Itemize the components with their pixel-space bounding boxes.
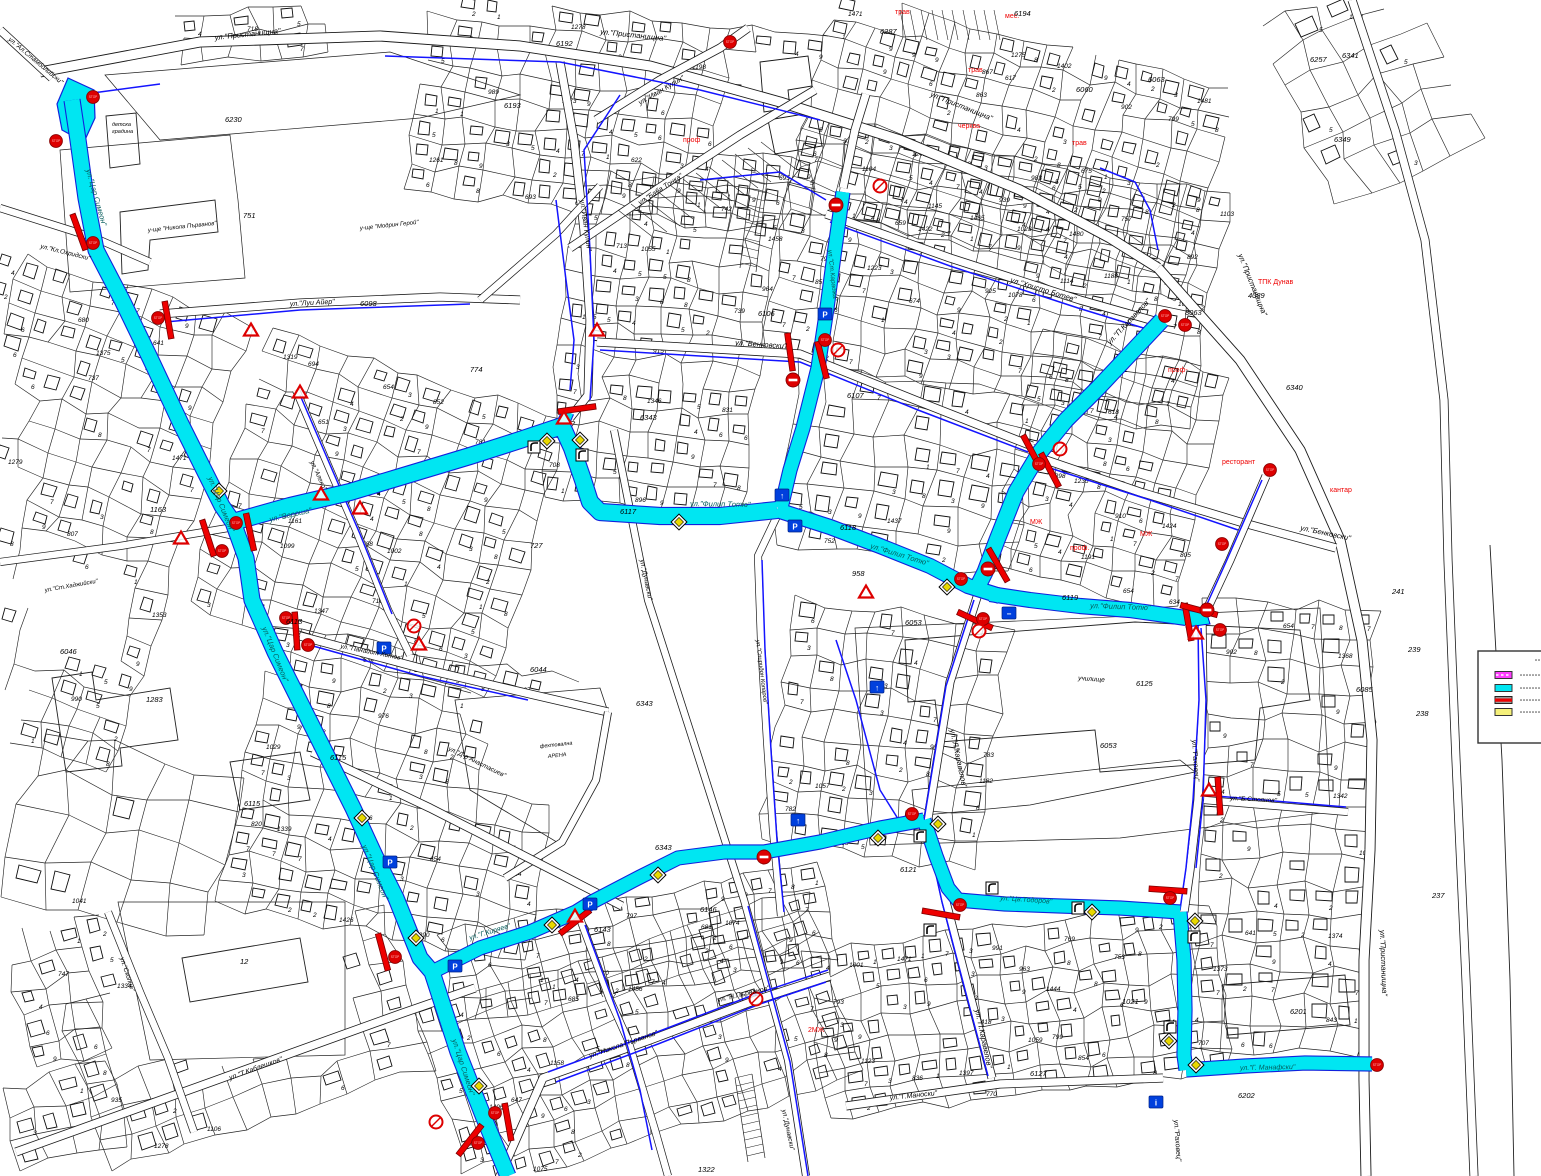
svg-text:STOP: STOP bbox=[1216, 628, 1225, 632]
svg-text:3: 3 bbox=[576, 364, 580, 371]
svg-text:5: 5 bbox=[638, 271, 642, 278]
svg-text:1402: 1402 bbox=[1057, 63, 1072, 70]
svg-text:976: 976 bbox=[378, 713, 389, 720]
svg-text:6: 6 bbox=[976, 805, 980, 812]
svg-text:5: 5 bbox=[697, 404, 701, 411]
svg-text:9: 9 bbox=[129, 686, 133, 693]
svg-text:6: 6 bbox=[1102, 1052, 1106, 1059]
svg-text:863: 863 bbox=[976, 92, 987, 99]
svg-text:836: 836 bbox=[912, 1075, 923, 1082]
svg-text:проф.: проф. bbox=[1070, 545, 1089, 552]
svg-text:2: 2 bbox=[1158, 924, 1163, 931]
svg-text:5: 5 bbox=[634, 132, 638, 139]
svg-text:1103: 1103 bbox=[1220, 211, 1234, 218]
svg-text:4: 4 bbox=[1274, 903, 1278, 910]
svg-text:4: 4 bbox=[350, 401, 354, 408]
svg-text:STOP: STOP bbox=[89, 241, 98, 245]
svg-text:7: 7 bbox=[190, 487, 194, 494]
svg-text:5: 5 bbox=[1191, 121, 1195, 128]
svg-text:1: 1 bbox=[389, 795, 393, 802]
svg-text:7: 7 bbox=[800, 699, 804, 706]
svg-text:трав: трав bbox=[1072, 140, 1087, 147]
svg-text:7: 7 bbox=[792, 275, 796, 282]
svg-text:3: 3 bbox=[1108, 437, 1112, 444]
svg-text:8: 8 bbox=[1254, 650, 1258, 657]
svg-text:6: 6 bbox=[924, 977, 928, 984]
svg-text:9: 9 bbox=[1197, 197, 1201, 204]
svg-text:4: 4 bbox=[914, 660, 918, 667]
svg-text:3: 3 bbox=[587, 1099, 591, 1106]
svg-text:7: 7 bbox=[849, 359, 853, 366]
svg-text:1480: 1480 bbox=[1069, 231, 1084, 238]
svg-text:6: 6 bbox=[1241, 1042, 1245, 1049]
svg-text:9: 9 bbox=[1247, 846, 1251, 853]
svg-text:6: 6 bbox=[1269, 1043, 1273, 1050]
svg-text:7: 7 bbox=[782, 322, 786, 329]
svg-text:807: 807 bbox=[67, 531, 78, 538]
svg-text:2: 2 bbox=[577, 1152, 582, 1159]
svg-text:3: 3 bbox=[888, 1078, 892, 1085]
svg-text:680: 680 bbox=[78, 317, 89, 324]
svg-text:3: 3 bbox=[733, 967, 737, 974]
svg-text:9: 9 bbox=[484, 497, 488, 504]
svg-text:9: 9 bbox=[935, 57, 939, 64]
svg-text:6: 6 bbox=[1126, 466, 1130, 473]
svg-text:9: 9 bbox=[930, 744, 934, 751]
svg-text:9: 9 bbox=[335, 451, 339, 458]
svg-text:1322: 1322 bbox=[698, 1165, 716, 1174]
svg-text:5: 5 bbox=[613, 469, 617, 476]
svg-text:1: 1 bbox=[31, 738, 35, 745]
svg-text:5: 5 bbox=[104, 679, 108, 686]
svg-text:8: 8 bbox=[1197, 329, 1201, 336]
svg-text:9: 9 bbox=[1334, 765, 1338, 772]
svg-text:5: 5 bbox=[1305, 792, 1309, 799]
svg-text:8: 8 bbox=[684, 302, 688, 309]
svg-text:239: 239 bbox=[1407, 645, 1421, 654]
svg-text:2: 2 bbox=[864, 139, 869, 146]
svg-text:1: 1 bbox=[1007, 1064, 1011, 1071]
svg-text:4: 4 bbox=[913, 152, 917, 159]
svg-text:3: 3 bbox=[286, 642, 290, 649]
svg-text:3: 3 bbox=[890, 269, 894, 276]
svg-text:7: 7 bbox=[877, 395, 881, 402]
svg-text:8: 8 bbox=[10, 541, 14, 548]
svg-text:6: 6 bbox=[729, 944, 733, 951]
svg-text:1223: 1223 bbox=[867, 265, 882, 272]
svg-text:P: P bbox=[792, 523, 798, 532]
svg-text:5: 5 bbox=[635, 1009, 639, 1016]
svg-text:5: 5 bbox=[876, 983, 880, 990]
svg-text:4: 4 bbox=[903, 740, 907, 747]
svg-text:3: 3 bbox=[343, 426, 347, 433]
svg-text:2: 2 bbox=[614, 988, 619, 995]
svg-text:9: 9 bbox=[848, 237, 852, 244]
svg-text:8063: 8063 bbox=[1185, 308, 1203, 317]
svg-text:7: 7 bbox=[988, 244, 992, 251]
svg-text:1: 1 bbox=[552, 984, 556, 991]
svg-text:820: 820 bbox=[251, 821, 262, 828]
svg-text:5: 5 bbox=[861, 844, 865, 851]
svg-text:7: 7 bbox=[862, 288, 866, 295]
svg-text:727: 727 bbox=[530, 541, 543, 550]
svg-text:896: 896 bbox=[635, 497, 646, 504]
svg-text:6115: 6115 bbox=[244, 799, 261, 808]
svg-text:1075: 1075 bbox=[533, 1166, 548, 1173]
svg-text:641: 641 bbox=[1245, 930, 1256, 937]
svg-text:8: 8 bbox=[626, 1062, 630, 1069]
svg-text:5: 5 bbox=[1037, 396, 1041, 403]
svg-text:5: 5 bbox=[402, 499, 406, 506]
svg-text:8: 8 bbox=[427, 506, 431, 513]
svg-text:1: 1 bbox=[460, 111, 464, 118]
svg-text:9: 9 bbox=[725, 1057, 729, 1064]
svg-text:8: 8 bbox=[846, 760, 850, 767]
svg-text:7: 7 bbox=[50, 499, 54, 506]
svg-text:6113: 6113 bbox=[286, 617, 303, 626]
svg-text:737: 737 bbox=[88, 375, 99, 382]
svg-text:6106: 6106 bbox=[758, 309, 776, 318]
svg-text:739: 739 bbox=[734, 308, 745, 315]
svg-text:774: 774 bbox=[470, 365, 483, 374]
svg-text:8: 8 bbox=[1103, 461, 1107, 468]
svg-text:2: 2 bbox=[1218, 873, 1223, 880]
svg-text:3: 3 bbox=[400, 876, 404, 883]
svg-text:ул."Г. Манафски": ул."Г. Манафски" bbox=[1239, 1064, 1296, 1072]
svg-text:797: 797 bbox=[626, 913, 637, 920]
svg-text:6: 6 bbox=[661, 110, 665, 117]
svg-text:3: 3 bbox=[947, 354, 951, 361]
svg-text:6: 6 bbox=[46, 1030, 50, 1037]
svg-text:2: 2 bbox=[409, 825, 414, 832]
svg-text:3: 3 bbox=[884, 683, 888, 690]
svg-text:6257: 6257 bbox=[1310, 55, 1328, 64]
svg-text:8: 8 bbox=[824, 1052, 828, 1059]
svg-text:4: 4 bbox=[1046, 226, 1050, 233]
svg-text:3: 3 bbox=[892, 489, 896, 496]
svg-text:8: 8 bbox=[1339, 625, 1343, 632]
svg-text:7: 7 bbox=[891, 630, 895, 637]
svg-text:9: 9 bbox=[136, 661, 140, 668]
svg-text:P: P bbox=[822, 311, 828, 320]
svg-text:4: 4 bbox=[979, 189, 983, 196]
svg-text:989: 989 bbox=[488, 89, 499, 96]
svg-text:7: 7 bbox=[246, 846, 250, 853]
svg-text:2: 2 bbox=[898, 767, 903, 774]
svg-text:7: 7 bbox=[933, 717, 937, 724]
svg-text:1342: 1342 bbox=[1333, 793, 1348, 800]
svg-text:3: 3 bbox=[1414, 160, 1418, 167]
svg-text:8: 8 bbox=[571, 1129, 575, 1136]
svg-text:6: 6 bbox=[341, 1085, 345, 1092]
svg-text:7: 7 bbox=[1090, 408, 1094, 415]
svg-text:1: 1 bbox=[1025, 418, 1029, 425]
svg-text:2: 2 bbox=[113, 736, 118, 743]
svg-text:1471: 1471 bbox=[848, 11, 863, 18]
svg-text:7: 7 bbox=[298, 856, 302, 863]
svg-text:2: 2 bbox=[382, 688, 387, 695]
svg-text:↑: ↑ bbox=[875, 684, 879, 693]
svg-text:2: 2 bbox=[805, 326, 810, 333]
svg-text:681: 681 bbox=[701, 924, 712, 931]
svg-text:5: 5 bbox=[121, 357, 125, 364]
svg-text:7: 7 bbox=[1173, 324, 1177, 331]
svg-text:6194: 6194 bbox=[1014, 9, 1031, 18]
svg-text:6: 6 bbox=[94, 1044, 98, 1051]
svg-text:2: 2 bbox=[172, 1108, 177, 1115]
svg-text:752: 752 bbox=[824, 538, 835, 545]
svg-text:1426: 1426 bbox=[339, 917, 354, 924]
svg-text:7: 7 bbox=[417, 449, 421, 456]
svg-text:8: 8 bbox=[1034, 57, 1038, 64]
svg-text:751: 751 bbox=[243, 211, 256, 220]
svg-text:1444: 1444 bbox=[1046, 986, 1061, 993]
svg-text:2: 2 bbox=[312, 912, 317, 919]
svg-text:8: 8 bbox=[504, 611, 508, 618]
svg-text:1104: 1104 bbox=[862, 166, 876, 173]
svg-text:6: 6 bbox=[975, 212, 979, 219]
svg-text:2: 2 bbox=[998, 339, 1003, 346]
svg-text:3: 3 bbox=[100, 514, 104, 521]
svg-text:7: 7 bbox=[1175, 576, 1179, 583]
svg-text:9: 9 bbox=[622, 193, 626, 200]
svg-text:237: 237 bbox=[1431, 891, 1445, 900]
svg-text:3: 3 bbox=[635, 296, 639, 303]
svg-text:2: 2 bbox=[940, 232, 945, 239]
svg-text:5: 5 bbox=[355, 566, 359, 573]
svg-text:6046: 6046 bbox=[60, 647, 78, 656]
svg-text:1275: 1275 bbox=[1011, 52, 1026, 59]
svg-text:7: 7 bbox=[768, 888, 772, 895]
svg-text:9: 9 bbox=[919, 373, 923, 380]
svg-text:7: 7 bbox=[387, 1042, 391, 1049]
svg-text:2: 2 bbox=[946, 110, 951, 117]
svg-text:ресторант: ресторант bbox=[1222, 459, 1256, 466]
svg-text:4: 4 bbox=[965, 409, 969, 416]
svg-text:9: 9 bbox=[858, 1034, 862, 1041]
svg-text:9: 9 bbox=[42, 524, 46, 531]
svg-text:6053: 6053 bbox=[1100, 741, 1118, 750]
svg-text:3: 3 bbox=[408, 392, 412, 399]
svg-text:1339: 1339 bbox=[277, 826, 292, 833]
svg-text:6044: 6044 bbox=[530, 665, 547, 674]
svg-text:659: 659 bbox=[895, 220, 906, 227]
svg-text:5: 5 bbox=[1329, 127, 1333, 134]
svg-text:8: 8 bbox=[103, 1070, 107, 1077]
svg-text:7: 7 bbox=[1367, 626, 1371, 633]
svg-text:654: 654 bbox=[1123, 588, 1134, 595]
svg-text:8: 8 bbox=[476, 188, 480, 195]
svg-text:713: 713 bbox=[616, 243, 627, 250]
svg-text:1458: 1458 bbox=[768, 236, 783, 243]
svg-text:3: 3 bbox=[33, 1130, 37, 1137]
svg-text:P: P bbox=[587, 901, 593, 910]
svg-text:1368: 1368 bbox=[1338, 653, 1353, 660]
svg-text:843: 843 bbox=[1326, 1017, 1337, 1024]
svg-text:8: 8 bbox=[801, 228, 805, 235]
svg-text:8: 8 bbox=[737, 485, 741, 492]
svg-text:6: 6 bbox=[929, 81, 933, 88]
svg-text:4: 4 bbox=[613, 268, 617, 275]
svg-text:4: 4 bbox=[1195, 1017, 1199, 1024]
svg-text:2: 2 bbox=[1003, 316, 1008, 323]
svg-text:1: 1 bbox=[842, 34, 846, 41]
svg-text:1106: 1106 bbox=[207, 1126, 221, 1133]
svg-text:7: 7 bbox=[573, 389, 577, 396]
svg-text:4: 4 bbox=[11, 270, 15, 277]
svg-text:2: 2 bbox=[3, 294, 8, 301]
svg-text:4: 4 bbox=[1058, 549, 1062, 556]
svg-text:2: 2 bbox=[788, 779, 793, 786]
svg-text:7: 7 bbox=[1133, 541, 1137, 548]
svg-text:3: 3 bbox=[1045, 496, 1049, 503]
svg-text:7: 7 bbox=[1166, 401, 1170, 408]
svg-text:1481: 1481 bbox=[1197, 98, 1212, 105]
svg-text:2: 2 bbox=[841, 786, 846, 793]
svg-text:3: 3 bbox=[924, 349, 928, 356]
svg-text:4: 4 bbox=[1191, 230, 1195, 237]
svg-text:4: 4 bbox=[694, 429, 698, 436]
svg-text:910: 910 bbox=[1115, 513, 1126, 520]
svg-text:5: 5 bbox=[96, 703, 100, 710]
svg-text:1: 1 bbox=[697, 202, 701, 209]
svg-text:2МЖ: 2МЖ bbox=[808, 1027, 825, 1034]
svg-text:STOP: STOP bbox=[956, 903, 965, 907]
svg-text:6192: 6192 bbox=[556, 39, 574, 48]
svg-text:8: 8 bbox=[1094, 981, 1098, 988]
svg-text:1: 1 bbox=[561, 488, 565, 495]
svg-text:4: 4 bbox=[952, 330, 956, 337]
svg-text:1: 1 bbox=[780, 959, 784, 966]
svg-text:3: 3 bbox=[828, 509, 832, 516]
svg-text:5: 5 bbox=[693, 227, 697, 234]
svg-text:4: 4 bbox=[644, 221, 648, 228]
svg-text:4: 4 bbox=[370, 516, 374, 523]
svg-text:6053: 6053 bbox=[905, 618, 923, 627]
svg-text:1346: 1346 bbox=[647, 398, 662, 405]
svg-text:МЖ: МЖ bbox=[1140, 531, 1153, 538]
svg-text:1163: 1163 bbox=[150, 505, 167, 514]
svg-text:6: 6 bbox=[811, 618, 815, 625]
svg-text:9: 9 bbox=[691, 454, 695, 461]
svg-text:8: 8 bbox=[494, 554, 498, 561]
svg-text:7: 7 bbox=[864, 1081, 868, 1088]
svg-text:5: 5 bbox=[531, 145, 535, 152]
svg-text:925: 925 bbox=[985, 288, 996, 295]
svg-text:12: 12 bbox=[240, 957, 249, 966]
svg-text:4: 4 bbox=[39, 1004, 43, 1011]
svg-text:STOP: STOP bbox=[154, 316, 163, 320]
svg-text:7: 7 bbox=[1250, 762, 1254, 769]
svg-text:1424: 1424 bbox=[1162, 523, 1177, 530]
svg-text:1: 1 bbox=[815, 880, 819, 887]
svg-text:9: 9 bbox=[883, 69, 887, 76]
svg-text:783: 783 bbox=[983, 752, 994, 759]
svg-text:1002: 1002 bbox=[387, 548, 402, 555]
svg-text:6146: 6146 bbox=[700, 905, 718, 914]
svg-text:8: 8 bbox=[1155, 419, 1159, 426]
svg-text:1: 1 bbox=[497, 14, 501, 21]
svg-text:4: 4 bbox=[705, 166, 709, 173]
svg-text:3: 3 bbox=[476, 891, 480, 898]
svg-text:651: 651 bbox=[318, 419, 329, 426]
svg-text:3: 3 bbox=[207, 602, 211, 609]
svg-text:7: 7 bbox=[805, 907, 809, 914]
svg-text:5: 5 bbox=[1078, 184, 1082, 191]
svg-text:2: 2 bbox=[1219, 817, 1224, 824]
svg-text:7: 7 bbox=[300, 46, 304, 53]
svg-text:1: 1 bbox=[881, 317, 885, 324]
svg-text:8: 8 bbox=[150, 529, 154, 536]
svg-text:детска: детска bbox=[112, 122, 131, 128]
svg-text:7: 7 bbox=[713, 482, 717, 489]
svg-text:4: 4 bbox=[778, 1066, 782, 1073]
svg-text:3: 3 bbox=[951, 498, 955, 505]
svg-text:−: − bbox=[1007, 610, 1012, 619]
svg-text:3: 3 bbox=[242, 872, 246, 879]
svg-text:кантар: кантар bbox=[1330, 487, 1352, 494]
svg-text:5: 5 bbox=[681, 327, 685, 334]
svg-text:1: 1 bbox=[479, 604, 483, 611]
svg-text:2: 2 bbox=[705, 330, 710, 337]
svg-text:9: 9 bbox=[1336, 709, 1340, 716]
svg-text:2: 2 bbox=[1150, 86, 1155, 93]
svg-text:1471: 1471 bbox=[897, 956, 912, 963]
svg-text:7: 7 bbox=[945, 951, 949, 958]
svg-text:2: 2 bbox=[1155, 162, 1160, 169]
svg-text:2: 2 bbox=[1242, 986, 1247, 993]
svg-text:6: 6 bbox=[708, 141, 712, 148]
svg-text:6230: 6230 bbox=[225, 115, 243, 124]
svg-text:1: 1 bbox=[1127, 279, 1131, 286]
svg-text:5: 5 bbox=[432, 132, 436, 139]
svg-text:3: 3 bbox=[807, 645, 811, 652]
svg-text:685: 685 bbox=[568, 996, 579, 1003]
svg-text:4: 4 bbox=[556, 148, 560, 155]
svg-text:1279: 1279 bbox=[8, 459, 23, 466]
svg-text:7: 7 bbox=[272, 851, 276, 858]
svg-text:6127: 6127 bbox=[1030, 1069, 1048, 1078]
svg-text:6: 6 bbox=[13, 352, 17, 359]
svg-text:МЖ: МЖ bbox=[1030, 519, 1043, 526]
svg-text:6060: 6060 bbox=[1076, 85, 1094, 94]
svg-text:6: 6 bbox=[1139, 518, 1143, 525]
svg-text:3: 3 bbox=[843, 138, 847, 145]
svg-text:5: 5 bbox=[594, 215, 598, 222]
svg-text:617: 617 bbox=[1005, 75, 1016, 82]
svg-text:8: 8 bbox=[454, 160, 458, 167]
svg-text:7: 7 bbox=[947, 231, 951, 238]
svg-text:4089: 4089 bbox=[1248, 291, 1266, 300]
svg-text:9: 9 bbox=[889, 46, 893, 53]
svg-text:1145: 1145 bbox=[928, 203, 942, 210]
svg-text:4: 4 bbox=[609, 129, 613, 136]
svg-text:2: 2 bbox=[1328, 905, 1333, 912]
svg-text:9: 9 bbox=[1223, 733, 1227, 740]
svg-text:1: 1 bbox=[79, 671, 83, 678]
svg-text:7: 7 bbox=[261, 770, 265, 777]
svg-text:9: 9 bbox=[1135, 927, 1139, 934]
svg-text:1: 1 bbox=[666, 249, 670, 256]
svg-text:1078: 1078 bbox=[1008, 292, 1023, 299]
svg-text:1057: 1057 bbox=[815, 783, 830, 790]
svg-text:6118: 6118 bbox=[840, 523, 857, 532]
svg-text:STOP: STOP bbox=[957, 577, 966, 581]
svg-text:983: 983 bbox=[1031, 175, 1042, 182]
svg-text:6343: 6343 bbox=[655, 843, 673, 852]
svg-text:градина: градина bbox=[112, 129, 133, 135]
svg-text:8: 8 bbox=[623, 395, 627, 402]
